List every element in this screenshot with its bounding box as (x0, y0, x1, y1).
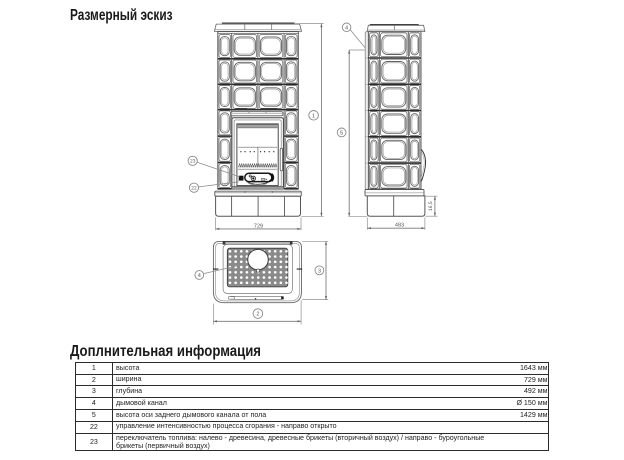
svg-text:2: 2 (256, 312, 259, 318)
svg-text:4: 4 (345, 25, 348, 31)
svg-text:729: 729 (254, 223, 263, 229)
svg-text:4: 4 (198, 273, 201, 279)
svg-text:3: 3 (318, 268, 321, 274)
svg-text:1: 1 (312, 113, 315, 119)
svg-text:483: 483 (395, 223, 404, 229)
svg-text:22: 22 (191, 186, 197, 192)
svg-text:16,5: 16,5 (428, 201, 434, 211)
svg-text:23: 23 (190, 159, 196, 165)
svg-text:5: 5 (340, 130, 343, 136)
